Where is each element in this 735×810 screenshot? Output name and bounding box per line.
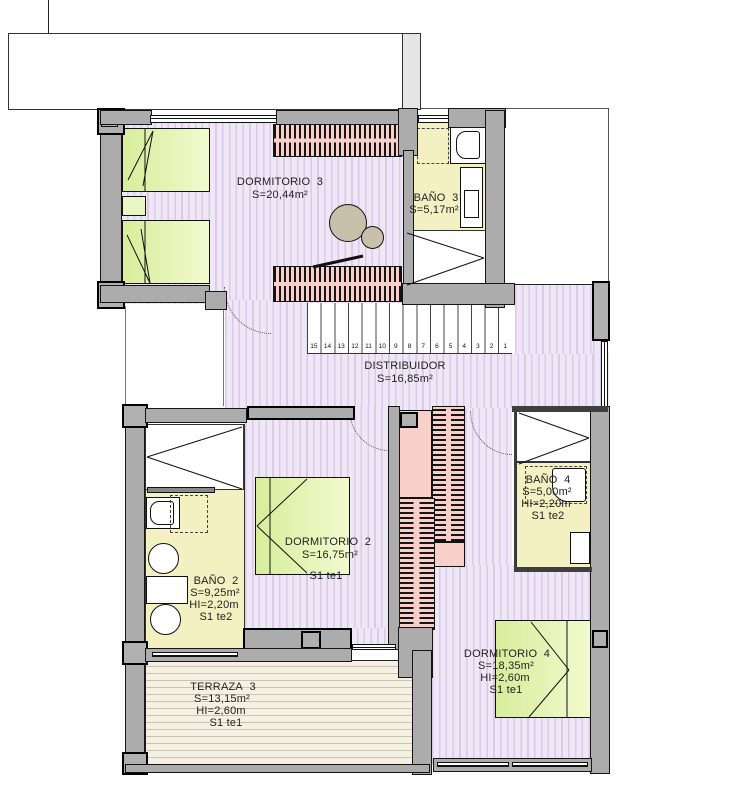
label-bano3-name: BAÑO 3 bbox=[414, 192, 459, 204]
stair-number: 14 bbox=[321, 342, 335, 352]
bed-dorm3-2 bbox=[122, 220, 210, 284]
label-dormitorio4-area: S=18,35m² bbox=[478, 660, 534, 672]
window-corridor-right bbox=[601, 341, 608, 407]
wall-left-lower bbox=[125, 406, 145, 775]
shower-bano4 bbox=[516, 410, 592, 462]
label-dormitorio3-name: DORMITORIO 3 bbox=[237, 176, 323, 188]
stair-number: 9 bbox=[389, 342, 403, 352]
wardrobe-central-right bbox=[432, 406, 465, 542]
pillar-wardrobe-top bbox=[398, 108, 418, 156]
label-dormitorio2-area: S=16,75m² bbox=[302, 549, 358, 561]
wall-bano4-bottom bbox=[514, 567, 592, 572]
stair-number: 6 bbox=[430, 342, 444, 352]
wall-dorm3-bottom-a bbox=[100, 285, 210, 303]
wall-right-topblock bbox=[485, 110, 505, 308]
bathtub-bano3-inner bbox=[456, 131, 480, 159]
label-terraza3-name: TERRAZA 3 bbox=[190, 681, 256, 693]
pillar-wardrobe-central bbox=[400, 412, 418, 428]
cistern-bano2 bbox=[146, 576, 188, 604]
wall-dorm2-top bbox=[247, 406, 355, 420]
wall-terraza-divider bbox=[412, 650, 432, 775]
label-dormitorio4-name: DORMITORIO 4 bbox=[464, 648, 550, 660]
vanity-bano2 bbox=[170, 495, 208, 533]
stair-number: 5 bbox=[444, 342, 458, 352]
shower-bano3 bbox=[405, 230, 487, 288]
label-dormitorio2-note: S1 te1 bbox=[309, 570, 342, 582]
stair-number: 8 bbox=[403, 342, 417, 352]
window-gap-terraza bbox=[352, 644, 396, 650]
window-bano3-top bbox=[418, 115, 450, 123]
wall-divider-bano3 bbox=[403, 150, 414, 290]
stair-number: 4 bbox=[457, 342, 471, 352]
wall-top-a bbox=[100, 110, 152, 125]
stair-number: 3 bbox=[471, 342, 485, 352]
window-dorm4-b bbox=[512, 762, 588, 767]
wall-dorm3-bottom-step bbox=[205, 291, 227, 310]
stair-number: 12 bbox=[348, 342, 362, 352]
floor-terraza bbox=[145, 660, 413, 766]
wall-bano4-left bbox=[514, 406, 516, 572]
wall-dorm2-right bbox=[388, 406, 400, 650]
label-bano4-area: S=5,00m² bbox=[522, 486, 572, 498]
wardrobe-dorm3-bottom bbox=[273, 266, 402, 302]
roof-line-vertical bbox=[48, 0, 49, 33]
window-terraza-top bbox=[152, 652, 238, 657]
pillar-dorm2-bottom bbox=[301, 631, 321, 649]
plant-small-icon bbox=[361, 226, 384, 249]
label-terraza3-area: S=13,15m² bbox=[194, 693, 250, 705]
wall-bano3-bottom bbox=[402, 283, 515, 305]
stair-numbers: 151413121110987654321 bbox=[307, 342, 512, 352]
wall-right-main bbox=[590, 406, 610, 774]
label-terraza3-height: HI=2,60m bbox=[196, 705, 246, 717]
label-bano4-name: BAÑO 4 bbox=[526, 474, 571, 486]
roof-line-right bbox=[608, 108, 609, 284]
label-bano2-area: S=9,25m² bbox=[190, 587, 240, 599]
wall-bano4-top bbox=[512, 406, 608, 412]
label-distribuidor-name: DISTRIBUIDOR bbox=[364, 360, 445, 372]
shower-bano2 bbox=[145, 424, 244, 490]
void-edge-right bbox=[223, 306, 224, 406]
sink-bano4 bbox=[570, 532, 590, 564]
nightstand-dorm3 bbox=[122, 196, 146, 216]
wardrobe-dorm3-top bbox=[273, 124, 402, 157]
label-bano2-note: S1 te2 bbox=[199, 611, 232, 623]
stair-number: 7 bbox=[416, 342, 430, 352]
stair-number: 1 bbox=[498, 342, 512, 352]
label-bano3-area: S=5,17m² bbox=[409, 204, 459, 216]
label-bano4-height: HI=2,20m bbox=[521, 498, 571, 510]
vanity-bano3 bbox=[417, 128, 449, 164]
roof-strip bbox=[402, 33, 421, 110]
label-terraza3-note: S1 te1 bbox=[209, 717, 242, 729]
wall-terraza-bottom bbox=[125, 764, 430, 773]
stair-number: 2 bbox=[485, 342, 499, 352]
wardrobe-central-left bbox=[398, 498, 435, 630]
label-dormitorio4-height: HI=2,60m bbox=[480, 672, 530, 684]
bidet-bano2 bbox=[150, 604, 181, 635]
window-dorm4-a bbox=[437, 762, 509, 767]
wardrobe-central-right-end bbox=[432, 542, 465, 567]
label-bano4-note: S1 te2 bbox=[531, 510, 564, 522]
stair-number: 13 bbox=[334, 342, 348, 352]
wall-bano2-top bbox=[145, 408, 247, 423]
stair-number: 10 bbox=[375, 342, 389, 352]
shower-partition-bano2 bbox=[147, 487, 215, 493]
label-dormitorio4-note: S1 te1 bbox=[489, 684, 522, 696]
void-edge-left bbox=[125, 306, 126, 406]
wall-top-b bbox=[276, 110, 402, 125]
pillar-topright-corridor bbox=[592, 281, 610, 341]
label-bano2-height: HI=2,20m bbox=[189, 599, 239, 611]
sink-bano3 bbox=[464, 190, 479, 218]
label-distribuidor-area: S=16,85m² bbox=[377, 373, 433, 385]
floor-plan: 151413121110987654321 bbox=[0, 0, 735, 810]
floor-corridor-topright bbox=[515, 284, 593, 354]
label-dormitorio2-name: DORMITORIO 2 bbox=[285, 536, 371, 548]
wall-left-dorm3 bbox=[100, 110, 122, 308]
toilet-bano2 bbox=[148, 543, 179, 574]
stair-number: 15 bbox=[307, 342, 321, 352]
window-dorm3-top bbox=[150, 115, 278, 123]
bed-dorm3-1 bbox=[122, 128, 210, 192]
pillar-right-box bbox=[592, 630, 608, 648]
roof-outline-box bbox=[8, 33, 421, 110]
stair-number: 11 bbox=[362, 342, 376, 352]
label-dormitorio3-area: S=20,44m² bbox=[252, 189, 308, 201]
label-bano2-name: BAÑO 2 bbox=[194, 575, 239, 587]
